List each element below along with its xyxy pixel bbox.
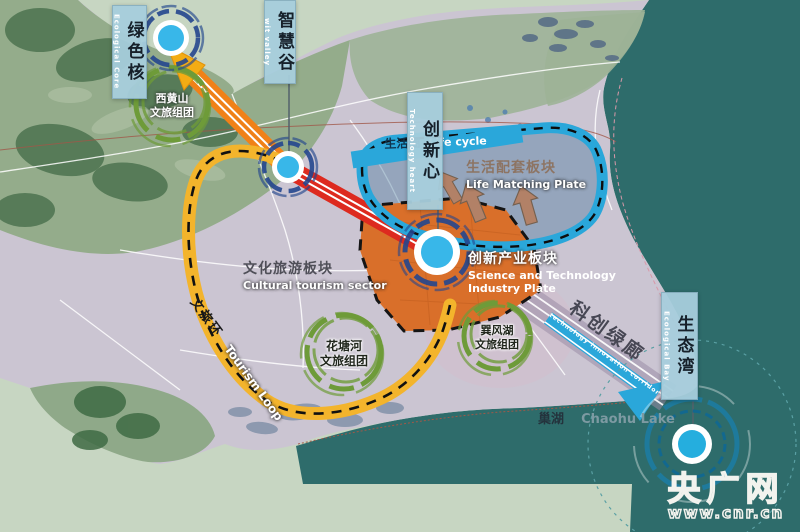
sci-zone-en2: Industry Plate xyxy=(468,282,616,296)
huatanghe-line2: 文旅组团 xyxy=(304,354,384,369)
xihuangshan-line2: 文旅组团 xyxy=(132,106,212,120)
banner-wit-valley: wit valley 智慧谷 xyxy=(264,0,296,84)
banner-green-core: Ecological Core 绿色核 xyxy=(112,5,147,99)
ecological-bay-en: Ecological Bay xyxy=(663,311,671,381)
lake-label: 巢湖 Chaohu Lake xyxy=(538,408,675,428)
planning-map: Ecological Core 绿色核 wit valley 智慧谷 Techn… xyxy=(0,0,800,532)
cultural-zone-zh: 文化旅游板块 xyxy=(243,261,387,279)
green-core-en: Ecological Core xyxy=(113,14,121,89)
life-zone-en: Life Matching Plate xyxy=(466,178,586,192)
sci-zone-label: 创新产业板块 Science and Technology Industry P… xyxy=(468,251,616,296)
xunfenghu-line2: 文旅组团 xyxy=(457,338,537,352)
innovation-heart-en: Technology heart xyxy=(408,109,416,193)
watermark: 央广网 www.cnr.cn xyxy=(652,472,800,522)
huatanghe-line1: 花塘河 xyxy=(304,339,384,354)
sci-zone-zh: 创新产业板块 xyxy=(468,251,616,269)
ecological-bay-zh: 生态湾 xyxy=(672,315,697,378)
cultural-zone-en: Cultural tourism sector xyxy=(243,279,387,293)
watermark-name: 央广网 xyxy=(652,472,800,505)
wit-valley-zh: 智慧谷 xyxy=(272,11,297,74)
green-core-zh: 绿色核 xyxy=(122,21,147,84)
lake-en: Chaohu Lake xyxy=(581,412,675,427)
cluster-huatanghe-label: 花塘河 文旅组团 xyxy=(304,339,384,369)
banner-innovation-heart: Technology heart 创新心 xyxy=(407,92,443,210)
life-zone-label: 生活配套板块 Life Matching Plate xyxy=(466,160,586,191)
life-zone-zh: 生活配套板块 xyxy=(466,160,586,178)
lake-zh: 巢湖 xyxy=(538,412,564,427)
cultural-zone-label: 文化旅游板块 Cultural tourism sector xyxy=(243,261,387,292)
watermark-url: www.cnr.cn xyxy=(652,505,800,522)
wit-valley-en: wit valley xyxy=(263,18,271,66)
cluster-xunfenghu-label: 巽风湖 文旅组团 xyxy=(457,324,537,352)
sci-zone-en1: Science and Technology xyxy=(468,269,616,283)
banner-ecological-bay: Ecological Bay 生态湾 xyxy=(661,292,698,400)
innovation-heart-zh: 创新心 xyxy=(417,120,442,183)
xunfenghu-line1: 巽风湖 xyxy=(457,324,537,338)
